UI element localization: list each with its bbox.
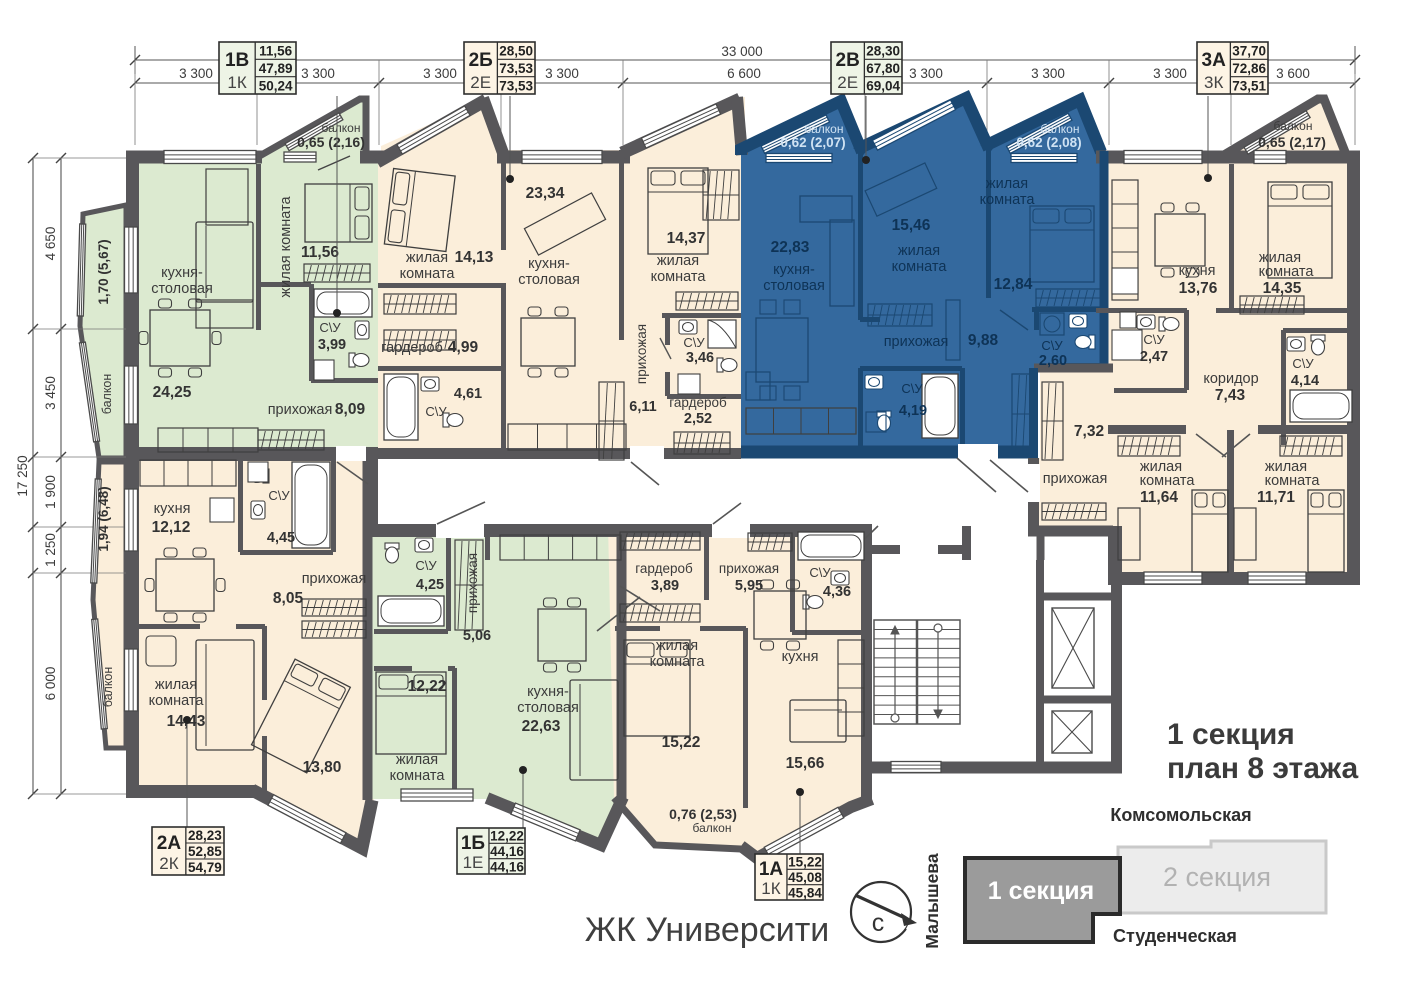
svg-text:11,71: 11,71 [1257, 489, 1295, 506]
svg-text:гардероб: гардероб [381, 340, 443, 356]
svg-text:4,45: 4,45 [267, 530, 295, 546]
svg-text:0,62 (2,07): 0,62 (2,07) [780, 135, 845, 150]
svg-text:столовая: столовая [518, 272, 580, 288]
svg-text:жилая: жилая [155, 677, 197, 693]
svg-text:3 300: 3 300 [301, 66, 335, 81]
svg-text:54,79: 54,79 [188, 860, 222, 875]
svg-text:3 300: 3 300 [1031, 66, 1065, 81]
svg-text:с: с [872, 909, 885, 937]
svg-text:44,16: 44,16 [490, 859, 524, 874]
svg-text:жилая: жилая [656, 638, 698, 654]
svg-text:28,30: 28,30 [866, 44, 900, 59]
svg-text:кухня: кухня [782, 649, 819, 665]
svg-text:2,47: 2,47 [1140, 349, 1168, 365]
svg-text:1К: 1К [761, 879, 780, 898]
svg-text:3 600: 3 600 [1276, 66, 1310, 81]
svg-text:28,23: 28,23 [188, 828, 222, 843]
svg-text:3,89: 3,89 [651, 578, 679, 594]
svg-text:1В: 1В [225, 50, 249, 71]
svg-text:жилая: жилая [898, 243, 940, 259]
svg-text:С\У: С\У [683, 335, 705, 350]
svg-text:45,08: 45,08 [788, 870, 822, 885]
svg-text:прихожая: прихожая [465, 553, 480, 613]
svg-text:14,35: 14,35 [1263, 280, 1302, 297]
svg-text:13,80: 13,80 [303, 759, 342, 776]
svg-text:С\У: С\У [1143, 332, 1165, 347]
svg-text:комната: комната [390, 768, 446, 784]
svg-text:0,65 (2,16): 0,65 (2,16) [297, 134, 365, 150]
svg-text:22,83: 22,83 [771, 239, 810, 256]
svg-text:2Е: 2Е [837, 73, 858, 92]
svg-text:11,56: 11,56 [259, 44, 293, 59]
svg-text:балкон: балкон [322, 121, 361, 135]
svg-text:6,11: 6,11 [629, 399, 656, 415]
svg-text:3 300: 3 300 [1153, 66, 1187, 81]
svg-text:1Б: 1Б [461, 833, 485, 854]
svg-text:кухня-: кухня- [528, 256, 570, 272]
svg-text:33 000: 33 000 [721, 44, 762, 59]
svg-text:2В: 2В [836, 50, 860, 71]
svg-text:72,86: 72,86 [1232, 61, 1266, 76]
svg-text:прихожая: прихожая [1043, 471, 1108, 487]
svg-text:8,05: 8,05 [273, 590, 304, 607]
svg-text:С\У: С\У [425, 404, 447, 419]
svg-text:12,84: 12,84 [994, 276, 1033, 293]
svg-text:3К: 3К [1204, 73, 1223, 92]
svg-text:Малышева: Малышева [922, 853, 942, 948]
svg-text:3А: 3А [1202, 50, 1227, 71]
svg-text:балкон: балкон [1041, 122, 1080, 136]
svg-text:комната: комната [149, 693, 205, 709]
svg-text:24,25: 24,25 [153, 384, 192, 401]
svg-text:45,84: 45,84 [788, 885, 822, 900]
svg-text:12,12: 12,12 [152, 519, 191, 536]
svg-text:2 секция: 2 секция [1163, 862, 1271, 892]
svg-text:столовая: столовая [517, 700, 579, 716]
svg-text:1 секция: 1 секция [988, 877, 1095, 905]
svg-text:жилая комната: жилая комната [278, 196, 294, 298]
svg-text:прихожая: прихожая [302, 571, 367, 587]
svg-text:3 300: 3 300 [179, 66, 213, 81]
svg-text:11,64: 11,64 [1140, 489, 1178, 506]
svg-text:73,51: 73,51 [1232, 78, 1266, 93]
svg-text:2,52: 2,52 [684, 411, 712, 427]
svg-text:1,70 (5,67): 1,70 (5,67) [96, 239, 111, 304]
svg-text:комната: комната [980, 192, 1036, 208]
svg-text:прихожая: прихожая [634, 324, 649, 384]
svg-text:кухня: кухня [154, 501, 191, 517]
svg-text:1,94 (6,48): 1,94 (6,48) [96, 486, 111, 551]
svg-text:С\У: С\У [268, 488, 290, 503]
svg-text:6 600: 6 600 [727, 66, 761, 81]
svg-text:5,95: 5,95 [735, 578, 763, 594]
svg-text:балкон: балкон [1274, 119, 1313, 133]
svg-text:С\У: С\У [415, 558, 437, 573]
svg-text:комната: комната [892, 259, 948, 275]
svg-text:прихожая: прихожая [884, 334, 949, 350]
svg-text:2Е: 2Е [470, 73, 491, 92]
svg-text:14,13: 14,13 [455, 249, 494, 266]
svg-text:1К: 1К [227, 73, 246, 92]
svg-text:5,06: 5,06 [463, 628, 491, 644]
svg-text:13,76: 13,76 [1179, 280, 1218, 297]
svg-text:балкон: балкон [693, 821, 732, 835]
svg-text:ЖК Университи: ЖК Университи [585, 911, 830, 949]
svg-text:3 450: 3 450 [43, 376, 58, 410]
svg-text:С\У: С\У [809, 565, 831, 580]
svg-text:С\У: С\У [1292, 356, 1314, 371]
svg-text:С\У: С\У [901, 381, 923, 396]
svg-text:9,88: 9,88 [968, 332, 999, 349]
svg-text:3,46: 3,46 [686, 350, 714, 366]
svg-text:комната: комната [400, 266, 456, 282]
svg-text:план 8 этажа: план 8 этажа [1167, 752, 1359, 785]
svg-text:С\У: С\У [1041, 338, 1063, 353]
svg-text:7,43: 7,43 [1215, 387, 1246, 404]
svg-text:1Е: 1Е [463, 853, 484, 872]
svg-text:жилая: жилая [396, 752, 438, 768]
svg-text:Комсомольская: Комсомольская [1110, 805, 1251, 825]
svg-text:12,22: 12,22 [490, 829, 524, 844]
svg-text:67,80: 67,80 [866, 61, 900, 76]
svg-text:жилая: жилая [406, 250, 448, 266]
svg-text:0,62 (2,08): 0,62 (2,08) [1016, 135, 1081, 150]
svg-text:С\У: С\У [319, 320, 341, 335]
svg-text:прихожая: прихожая [719, 561, 779, 576]
svg-text:6 000: 6 000 [43, 667, 58, 701]
svg-text:2А: 2А [157, 833, 182, 854]
svg-text:73,53: 73,53 [499, 61, 533, 76]
svg-text:15,22: 15,22 [662, 734, 701, 751]
svg-text:1 секция: 1 секция [1167, 718, 1295, 751]
svg-text:4,36: 4,36 [823, 584, 851, 600]
svg-text:комната: комната [1265, 473, 1321, 489]
svg-text:комната: комната [1140, 473, 1196, 489]
svg-text:11,56: 11,56 [301, 244, 339, 261]
svg-text:комната: комната [1259, 264, 1315, 280]
svg-text:3 300: 3 300 [423, 66, 457, 81]
svg-text:0,76 (2,53): 0,76 (2,53) [669, 806, 737, 822]
svg-text:балкон: балкон [101, 667, 115, 708]
svg-text:1А: 1А [759, 859, 784, 880]
svg-text:комната: комната [651, 269, 707, 285]
svg-text:15,66: 15,66 [786, 755, 825, 772]
svg-text:12,22: 12,22 [408, 678, 447, 695]
svg-text:4,99: 4,99 [448, 339, 479, 356]
svg-text:52,85: 52,85 [188, 844, 222, 859]
svg-text:4,61: 4,61 [454, 386, 482, 402]
svg-text:50,24: 50,24 [259, 78, 293, 93]
svg-text:15,22: 15,22 [788, 855, 822, 870]
svg-text:1 900: 1 900 [43, 475, 58, 509]
svg-text:3,99: 3,99 [318, 337, 346, 353]
svg-text:жилая: жилая [657, 253, 699, 269]
svg-text:4,25: 4,25 [416, 577, 444, 593]
svg-text:4,14: 4,14 [1291, 373, 1319, 389]
svg-text:коридор: коридор [1203, 371, 1258, 387]
svg-text:69,04: 69,04 [866, 78, 900, 93]
svg-text:Студенческая: Студенческая [1113, 926, 1237, 946]
svg-text:прихожая: прихожая [268, 402, 333, 418]
svg-text:балкон: балкон [805, 122, 844, 136]
svg-text:столовая: столовая [151, 281, 213, 297]
svg-text:0,65 (2,17): 0,65 (2,17) [1258, 134, 1326, 150]
svg-text:15,46: 15,46 [892, 217, 931, 234]
svg-text:кухня: кухня [1179, 263, 1216, 279]
svg-text:4,19: 4,19 [899, 403, 927, 419]
svg-text:кухня-: кухня- [161, 265, 203, 281]
svg-text:7,32: 7,32 [1074, 423, 1104, 440]
svg-text:кухня-: кухня- [773, 262, 815, 278]
svg-text:2К: 2К [159, 854, 178, 873]
svg-text:73,53: 73,53 [499, 78, 533, 93]
svg-text:2,60: 2,60 [1039, 353, 1067, 369]
svg-text:гардероб: гардероб [635, 561, 693, 576]
svg-text:столовая: столовая [763, 278, 825, 294]
svg-text:3 300: 3 300 [545, 66, 579, 81]
svg-text:жилая: жилая [986, 176, 1028, 192]
svg-text:23,34: 23,34 [526, 185, 565, 202]
svg-text:2Б: 2Б [469, 50, 493, 71]
svg-text:комната: комната [650, 654, 706, 670]
svg-text:балкон: балкон [100, 374, 114, 415]
svg-text:37,70: 37,70 [1232, 44, 1266, 59]
svg-text:1 250: 1 250 [43, 533, 58, 567]
svg-text:47,89: 47,89 [259, 61, 293, 76]
svg-text:гардероб: гардероб [669, 395, 727, 410]
svg-text:3 300: 3 300 [909, 66, 943, 81]
svg-text:кухня-: кухня- [527, 684, 569, 700]
svg-text:4 650: 4 650 [43, 227, 58, 261]
svg-text:8,09: 8,09 [335, 401, 366, 418]
svg-text:22,63: 22,63 [522, 718, 561, 735]
svg-text:14,37: 14,37 [667, 230, 706, 247]
svg-text:44,16: 44,16 [490, 844, 524, 859]
svg-text:28,50: 28,50 [499, 44, 533, 59]
